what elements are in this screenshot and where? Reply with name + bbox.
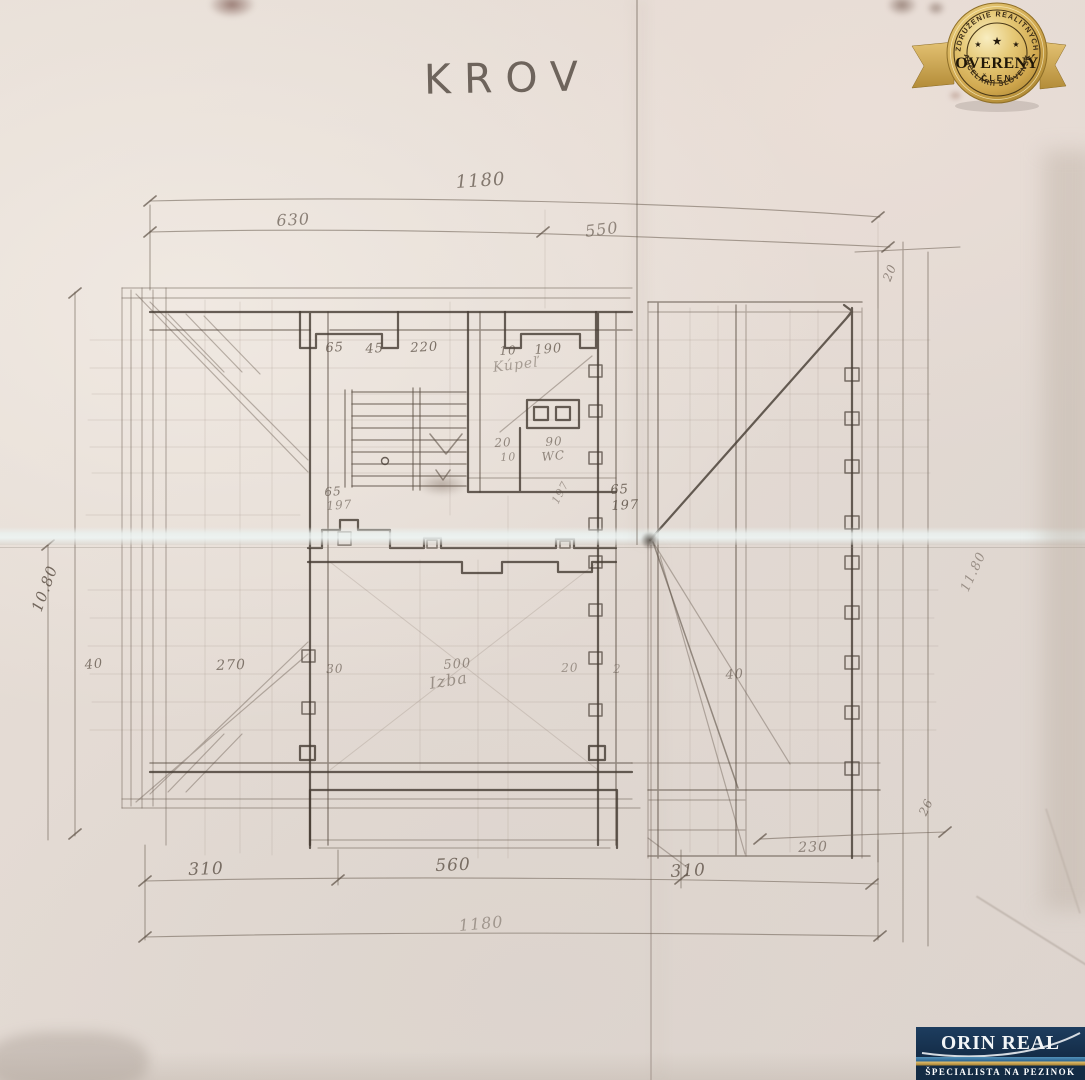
dim-label: 30 bbox=[326, 661, 344, 676]
paper-grime bbox=[1043, 150, 1085, 910]
dim-label: 90 bbox=[545, 434, 563, 449]
dim-label: 1180 bbox=[455, 169, 506, 193]
star-icon: ★ bbox=[1012, 40, 1019, 49]
badge-subtitle: ČLEN bbox=[981, 74, 1012, 83]
paper-stain bbox=[416, 473, 468, 496]
beam-pocket-squares bbox=[302, 365, 859, 775]
dim-label: 310 bbox=[188, 859, 224, 880]
dim-label: 10 bbox=[500, 450, 517, 464]
agency-logo: ORIN REAL ŠPECIALISTA NA PEZINOK bbox=[916, 1027, 1085, 1080]
inner-walls-stairs bbox=[150, 302, 880, 858]
dim-label: 310 bbox=[670, 860, 706, 882]
dim-label: 220 bbox=[410, 340, 439, 356]
dim-label: 45 bbox=[365, 341, 384, 357]
dim-label: 2 bbox=[613, 662, 622, 676]
vertical-fold-crease-top bbox=[636, 0, 638, 545]
logo-gold-stripe bbox=[916, 1062, 1085, 1066]
dim-label: 550 bbox=[584, 218, 620, 241]
dim-label: WC bbox=[541, 448, 566, 464]
dim-label: 560 bbox=[435, 855, 471, 876]
dim-label: 40 bbox=[84, 656, 104, 673]
verified-member-badge: ZDRUŽENIE REALITNÝCH KANCELÁRIÍ SLOVENSK… bbox=[860, 0, 1085, 125]
dim-label: 65 bbox=[324, 484, 342, 499]
dim-label: 10 bbox=[499, 343, 517, 358]
badge-title: OVERENÝ bbox=[955, 53, 1039, 72]
dim-label: 65 bbox=[610, 482, 629, 498]
plan-title: KROV bbox=[424, 52, 592, 103]
logo-tagline: ŠPECIALISTA NA PEZINOK bbox=[925, 1067, 1075, 1077]
blueprint-photo: 1180630550654522010190Kúpeľ201090WC65197… bbox=[0, 0, 1085, 1080]
dim-label: 197 bbox=[326, 497, 353, 513]
dim-label: 1180 bbox=[458, 912, 504, 935]
dim-label: 230 bbox=[798, 839, 828, 856]
dim-label: 20 bbox=[561, 660, 579, 675]
logo-name: ORIN REAL bbox=[941, 1033, 1060, 1054]
star-icon: ★ bbox=[974, 40, 981, 49]
star-icon: ★ bbox=[992, 36, 1002, 48]
logo-blue-stripe bbox=[916, 1057, 1085, 1062]
horizontal-fold-crease bbox=[0, 527, 1085, 545]
dim-label: 630 bbox=[276, 209, 310, 230]
dim-label: 40 bbox=[725, 667, 745, 683]
main-walls bbox=[150, 305, 852, 858]
dim-label: 20 bbox=[494, 435, 512, 450]
paper-stain bbox=[641, 532, 658, 549]
dim-label: 65 bbox=[325, 340, 344, 356]
vertical-fold-crease-bottom bbox=[650, 545, 652, 1080]
dimension-ticks bbox=[42, 196, 951, 942]
dim-label: 270 bbox=[216, 657, 246, 674]
horizontal-fold-line bbox=[0, 547, 1085, 548]
